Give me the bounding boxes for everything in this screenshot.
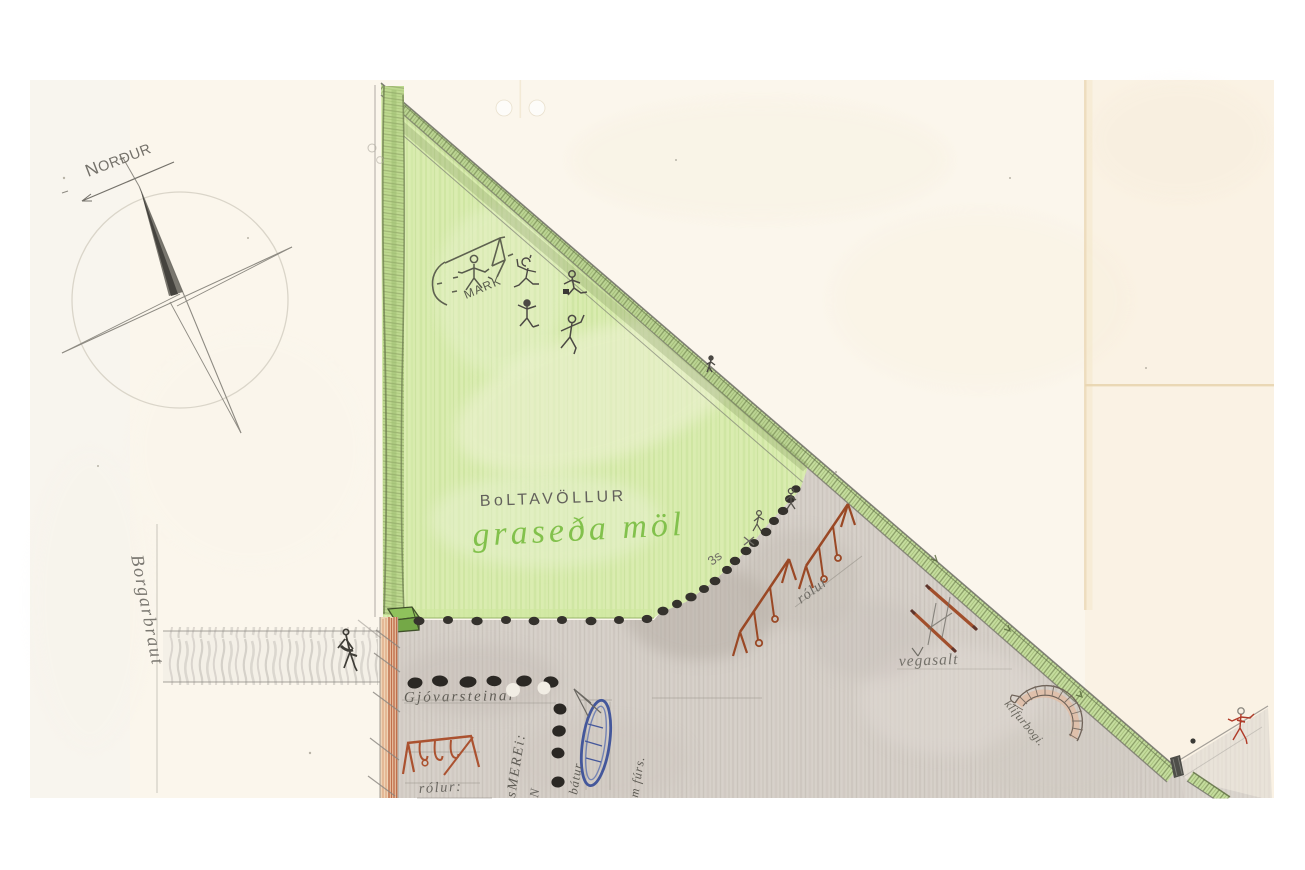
svg-text:rólur:: rólur: bbox=[418, 779, 462, 797]
svg-text:vegasalt: vegasalt bbox=[899, 651, 959, 670]
